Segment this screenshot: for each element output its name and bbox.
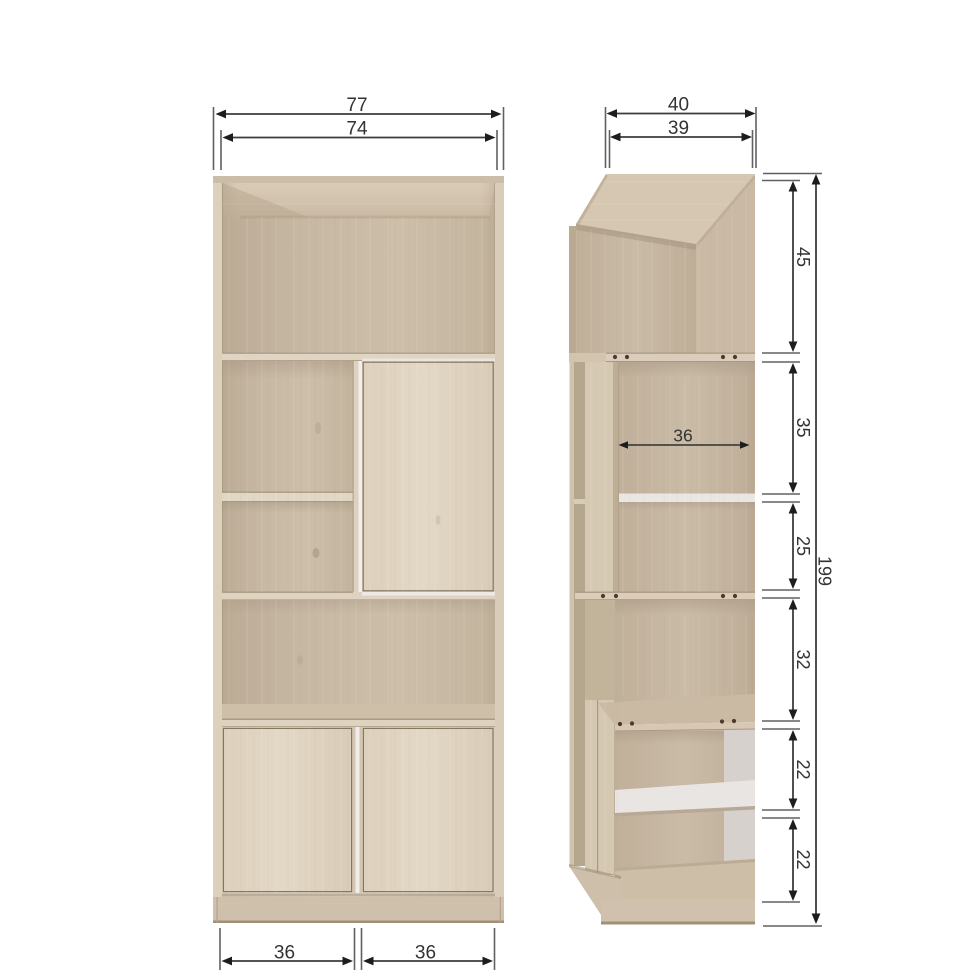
svg-text:36: 36 (415, 943, 436, 964)
svg-text:36: 36 (274, 943, 295, 964)
svg-text:25: 25 (793, 536, 813, 556)
svg-text:35: 35 (793, 417, 813, 437)
svg-text:39: 39 (668, 118, 689, 139)
svg-text:22: 22 (793, 759, 813, 779)
svg-text:22: 22 (793, 849, 813, 869)
svg-text:40: 40 (668, 95, 689, 116)
svg-text:199: 199 (815, 556, 835, 586)
svg-text:45: 45 (793, 247, 813, 267)
svg-text:32: 32 (793, 649, 813, 669)
svg-text:77: 77 (346, 95, 367, 116)
svg-text:36: 36 (673, 426, 692, 446)
svg-text:74: 74 (346, 119, 368, 140)
